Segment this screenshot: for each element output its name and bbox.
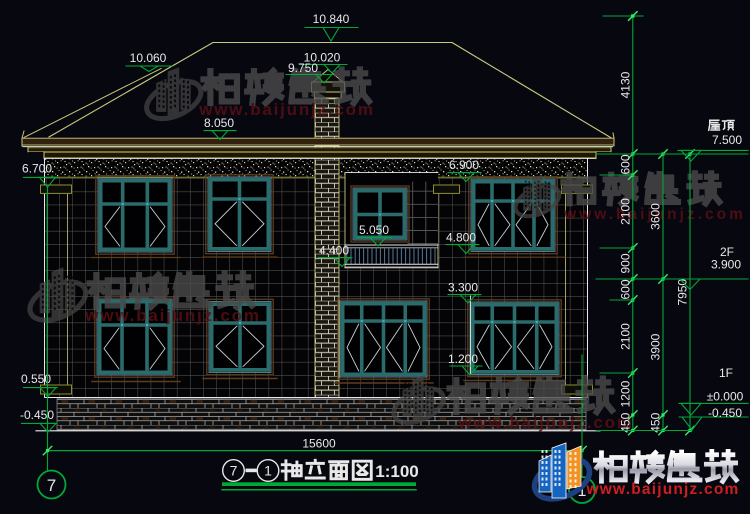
svg-text:7: 7	[47, 476, 56, 495]
svg-text:8.050: 8.050	[204, 116, 234, 130]
svg-text:7950: 7950	[676, 279, 690, 306]
svg-text:www.baijunjz.com: www.baijunjz.com	[457, 413, 634, 432]
svg-text:1: 1	[264, 463, 272, 479]
svg-text:1:100: 1:100	[375, 462, 418, 481]
svg-text:2100: 2100	[618, 198, 632, 225]
svg-text:4.400: 4.400	[319, 244, 349, 258]
svg-text:6.900: 6.900	[449, 158, 479, 172]
svg-text:3900: 3900	[649, 333, 663, 360]
svg-text:15600: 15600	[302, 437, 336, 451]
svg-text:450: 450	[618, 412, 632, 432]
svg-text:-0.450: -0.450	[708, 406, 742, 420]
svg-text:3.900: 3.900	[711, 258, 741, 272]
svg-text:2100: 2100	[618, 323, 632, 350]
svg-text:4.800: 4.800	[446, 231, 476, 245]
svg-text:1.200: 1.200	[448, 352, 478, 366]
svg-text:3.300: 3.300	[448, 281, 478, 295]
svg-text:600: 600	[618, 279, 632, 299]
svg-text:1200: 1200	[618, 380, 632, 407]
svg-text:10.060: 10.060	[130, 51, 167, 65]
svg-text:450: 450	[649, 412, 663, 432]
svg-text:1F: 1F	[719, 366, 733, 380]
svg-text:www.baijunjz.com: www.baijunjz.com	[84, 306, 261, 325]
svg-text:-0.450: -0.450	[20, 408, 54, 422]
svg-text:www.baijunjz.com: www.baijunjz.com	[586, 481, 740, 498]
svg-text:10.840: 10.840	[313, 12, 350, 26]
svg-text:4130: 4130	[618, 71, 632, 98]
svg-text:600: 600	[618, 154, 632, 174]
svg-text:±0.000: ±0.000	[707, 390, 744, 404]
svg-text:9.750: 9.750	[288, 61, 318, 75]
svg-text:3600: 3600	[649, 203, 663, 230]
svg-text:900: 900	[618, 253, 632, 273]
svg-text:6.700: 6.700	[22, 162, 52, 176]
svg-text:7.500: 7.500	[712, 133, 742, 147]
svg-text:5.050: 5.050	[359, 223, 389, 237]
svg-text:0.550: 0.550	[21, 372, 51, 386]
svg-text:7: 7	[230, 463, 238, 479]
